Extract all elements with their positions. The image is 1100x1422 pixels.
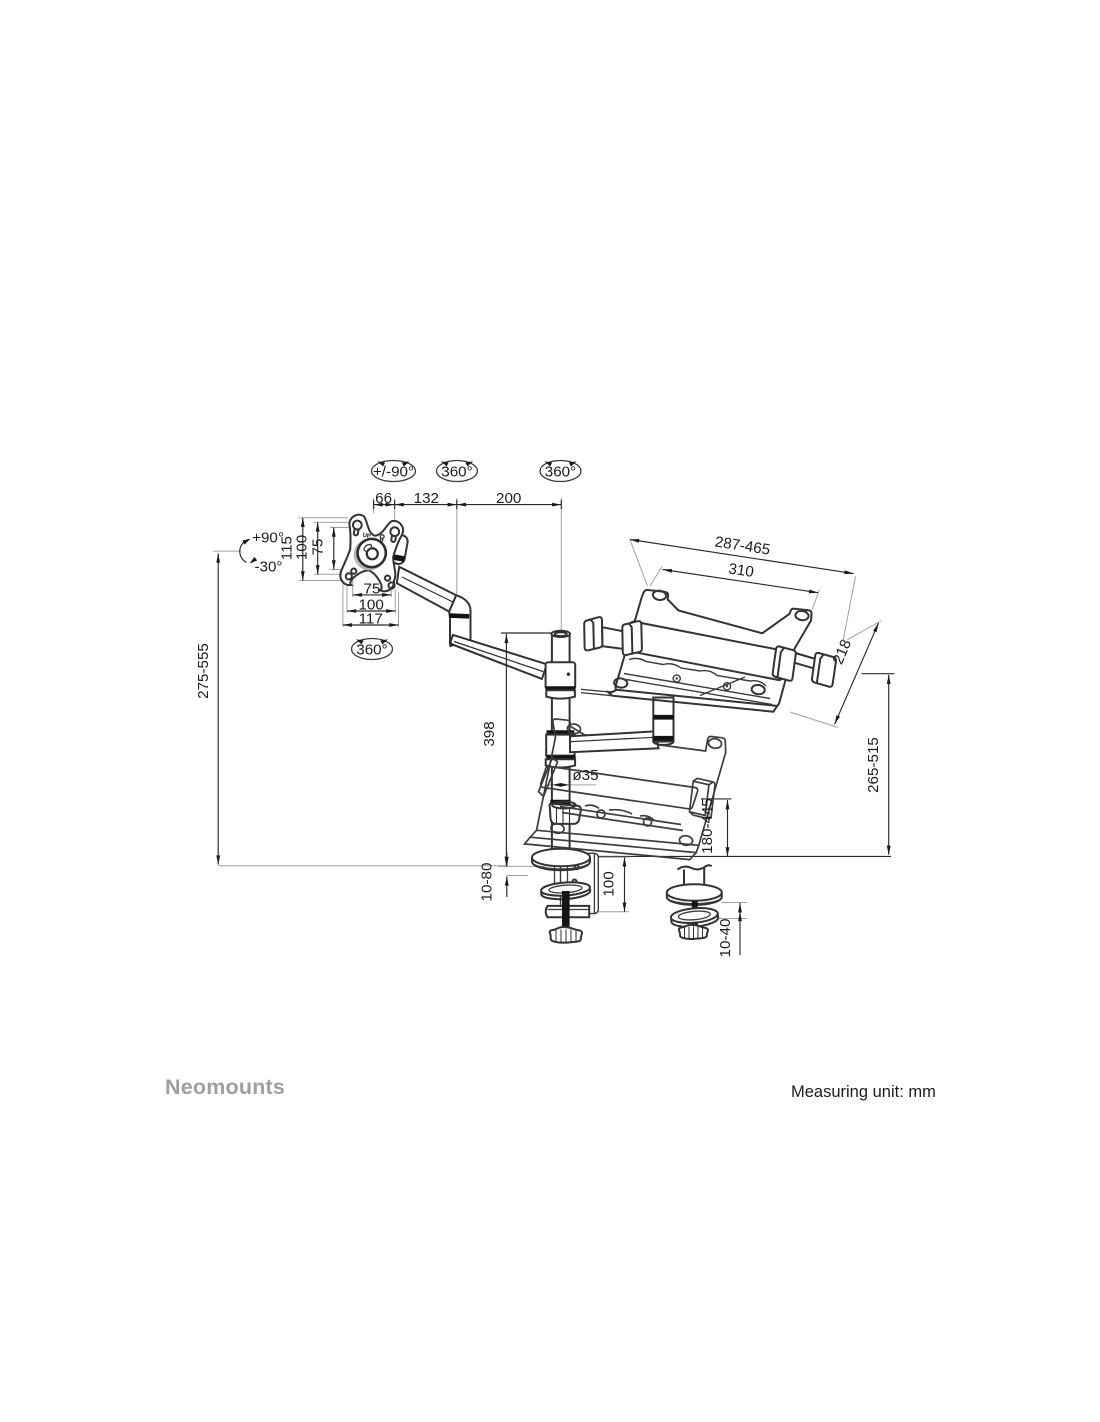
svg-text:Measuring unit: mm: Measuring unit: mm: [791, 1083, 936, 1101]
svg-text:10-80: 10-80: [479, 863, 496, 902]
svg-text:218: 218: [830, 637, 856, 667]
svg-text:117: 117: [359, 610, 383, 627]
svg-text:265-515: 265-515: [865, 737, 882, 793]
svg-text:+/-90°: +/-90°: [373, 463, 414, 480]
svg-text:287-465: 287-465: [714, 533, 772, 558]
svg-text:100: 100: [600, 871, 617, 896]
svg-text:360°: 360°: [356, 641, 387, 658]
svg-text:ø35: ø35: [572, 767, 598, 784]
svg-text:100: 100: [294, 535, 311, 560]
svg-text:75: 75: [363, 580, 380, 597]
svg-text:360°: 360°: [441, 463, 472, 480]
svg-text:398: 398: [481, 721, 498, 746]
svg-text:75: 75: [310, 539, 327, 556]
svg-text:275-555: 275-555: [195, 643, 212, 699]
svg-text:66: 66: [375, 490, 392, 507]
svg-text:360°: 360°: [545, 463, 576, 480]
svg-text:Neomounts: Neomounts: [165, 1075, 285, 1099]
svg-text:132: 132: [414, 490, 439, 507]
svg-text:310: 310: [727, 560, 755, 581]
svg-text:200: 200: [496, 490, 521, 507]
svg-text:10-40: 10-40: [717, 919, 734, 958]
svg-text:180-445: 180-445: [699, 798, 716, 854]
